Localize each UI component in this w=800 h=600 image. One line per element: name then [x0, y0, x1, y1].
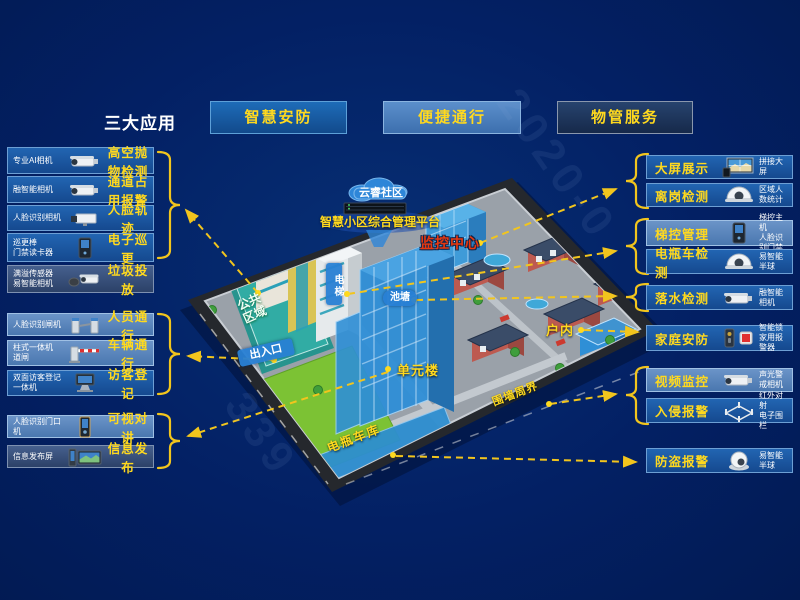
access-panel-icon [721, 222, 757, 244]
bullet-camera-icon [721, 369, 757, 391]
feature-label: 访客登记 [103, 364, 153, 402]
row-visitor-registration[interactable]: 双面访客登记 一体机 访客登记 [7, 370, 154, 396]
row-video-surveillance[interactable]: 视频监控 声光警戒相机 [646, 368, 793, 392]
device-label: 拼接大屏 [757, 157, 792, 177]
feature-label: 梯控管理 [647, 224, 721, 243]
row-big-screen-display[interactable]: 大屏展示 拼接大屏 [646, 155, 793, 179]
bullet-camera-icon [67, 179, 103, 201]
row-garbage-disposal[interactable]: 满溢传感器 易智能相机 垃圾投放 [7, 265, 154, 293]
barrier-gate-icon [67, 342, 103, 364]
feature-label: 离岗检测 [647, 186, 721, 205]
box-camera-icon [67, 207, 103, 229]
device-label: 人脸识别门口 机 [8, 417, 67, 437]
feature-label: 入侵报警 [647, 401, 721, 420]
bullet-camera-icon [721, 287, 757, 309]
device-label: 人脸识别闸机 [8, 320, 67, 330]
turret-camera-icon [721, 450, 757, 472]
bullet-camera-icon [67, 150, 103, 172]
info-screen-icon [67, 446, 103, 468]
device-label: 智能锁 家用报警器 [757, 323, 792, 353]
visitor-kiosk-icon [67, 372, 103, 394]
device-label: 双面访客登记 一体机 [8, 373, 67, 393]
row-video-intercom[interactable]: 人脸识别门口 机 可视对讲 [7, 415, 154, 438]
row-vehicle-access[interactable]: 柱式一体机 道闸 车辆通行 [7, 340, 154, 366]
row-burglar-alarm[interactable]: 防盗报警 易智能半球 [646, 448, 793, 473]
device-label: 巡更棒 门禁读卡器 [8, 238, 67, 258]
device-label: 易智能半球 [757, 252, 792, 272]
feature-label: 视频监控 [647, 371, 721, 390]
device-label: 红外对射 电子围栏 [757, 391, 792, 431]
video-wall-icon [721, 156, 757, 178]
feature-label: 电瓶车检测 [647, 243, 721, 281]
device-label: 融智能相机 [8, 185, 67, 195]
app-button-smart-security[interactable]: 智慧安防 [210, 101, 347, 134]
row-personnel-access[interactable]: 人脸识别闸机 人员通行 [7, 313, 154, 336]
feature-label: 信息发布 [103, 438, 153, 476]
row-home-security[interactable]: 家庭安防 智能锁 家用报警器 [646, 325, 793, 351]
device-label: 信息发布屏 [8, 452, 67, 462]
feature-label: 落水检测 [647, 288, 721, 307]
dome-camera-icon [721, 184, 757, 206]
app-button-property-service[interactable]: 物管服务 [557, 101, 693, 134]
feature-label: 大屏展示 [647, 158, 721, 177]
device-label: 柱式一体机 道闸 [8, 343, 67, 363]
row-absence-detection[interactable]: 离岗检测 区域人数统计 [646, 183, 793, 207]
device-label: 区域人数统计 [757, 185, 792, 205]
device-label: 融智能相机 [757, 288, 792, 308]
dome-camera-icon [721, 251, 757, 273]
row-face-trajectory[interactable]: 人脸识别相机 人脸轨迹 [7, 205, 154, 231]
row-info-publishing[interactable]: 信息发布屏 信息发布 [7, 445, 154, 468]
device-label: 满溢传感器 易智能相机 [8, 269, 67, 289]
turnstile-icon [67, 314, 103, 336]
lock-siren-icon [721, 327, 757, 349]
row-ebike-detection[interactable]: 电瓶车检测 易智能半球 [646, 249, 793, 274]
device-label: 易智能半球 [757, 451, 792, 471]
row-drowning-detection[interactable]: 落水检测 融智能相机 [646, 285, 793, 310]
smart-community-poster: 三大应用 智慧安防 便捷通行 物管服务 专业AI相机 高空抛物检测 融智能相机 … [0, 0, 800, 600]
page-title: 三大应用 [104, 109, 176, 134]
device-label: 专业AI相机 [8, 156, 67, 166]
device-label: 人脸识别相机 [8, 213, 67, 223]
row-intrusion-alarm[interactable]: 入侵报警 红外对射 电子围栏 [646, 398, 793, 423]
access-panel-icon [67, 237, 103, 259]
feature-label: 家庭安防 [647, 329, 721, 348]
perimeter-fence-icon [721, 400, 757, 422]
app-button-convenient-access[interactable]: 便捷通行 [383, 101, 521, 134]
device-label: 梯控主机 人脸识别门禁 [757, 213, 792, 253]
device-label: 声光警戒相机 [757, 370, 792, 390]
sensor-camera-icon [67, 268, 103, 290]
door-station-icon [67, 416, 103, 438]
feature-label: 垃圾投放 [103, 260, 153, 298]
row-electronic-patrol[interactable]: 巡更棒 门禁读卡器 电子巡更 [7, 233, 154, 262]
feature-label: 防盗报警 [647, 451, 721, 470]
